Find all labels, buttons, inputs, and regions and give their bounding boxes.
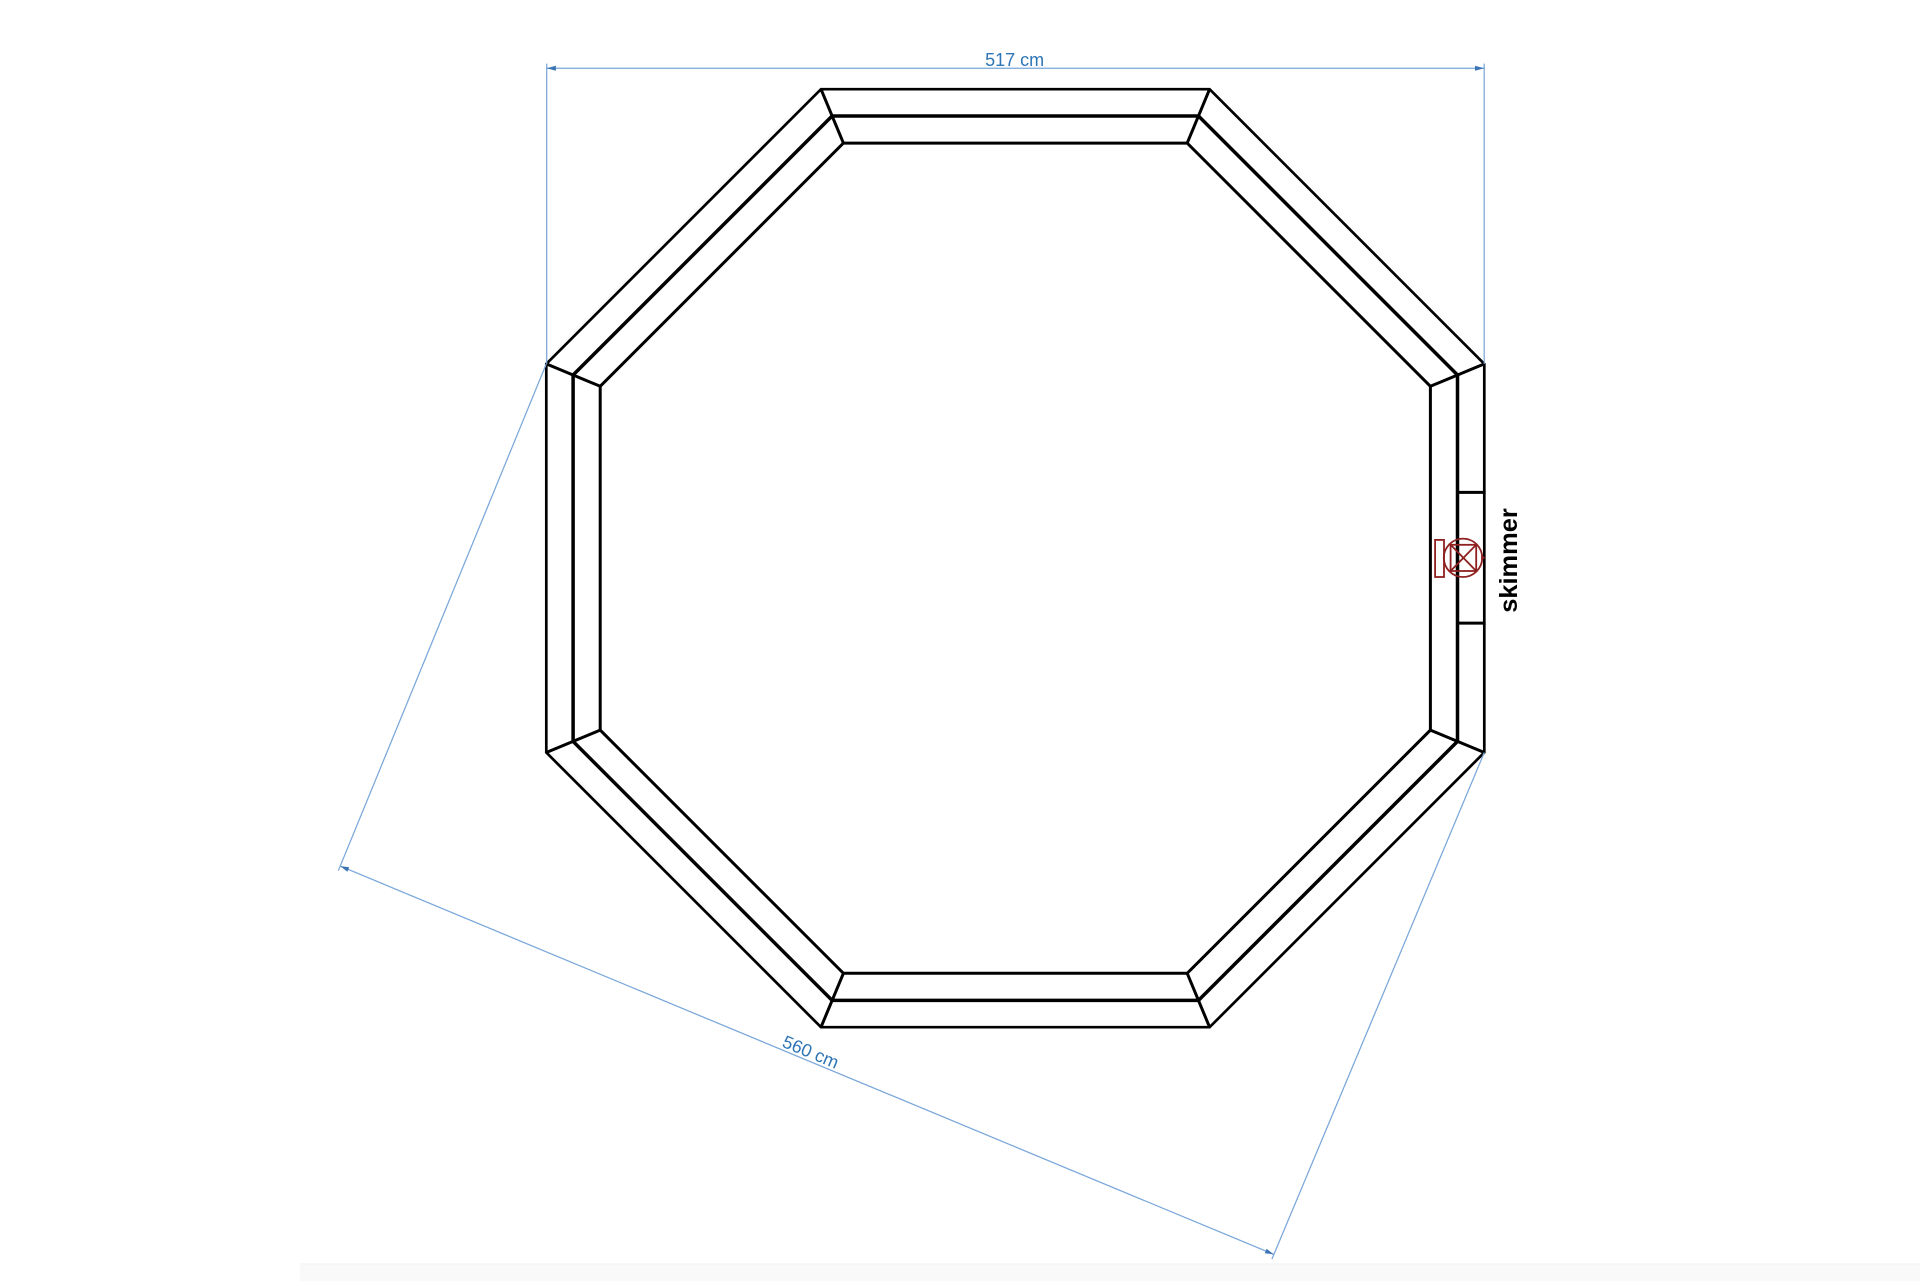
svg-text:517 cm: 517 cm xyxy=(985,50,1044,70)
svg-text:skimmer: skimmer xyxy=(1495,508,1523,613)
svg-text:560 cm: 560 cm xyxy=(780,1032,842,1073)
